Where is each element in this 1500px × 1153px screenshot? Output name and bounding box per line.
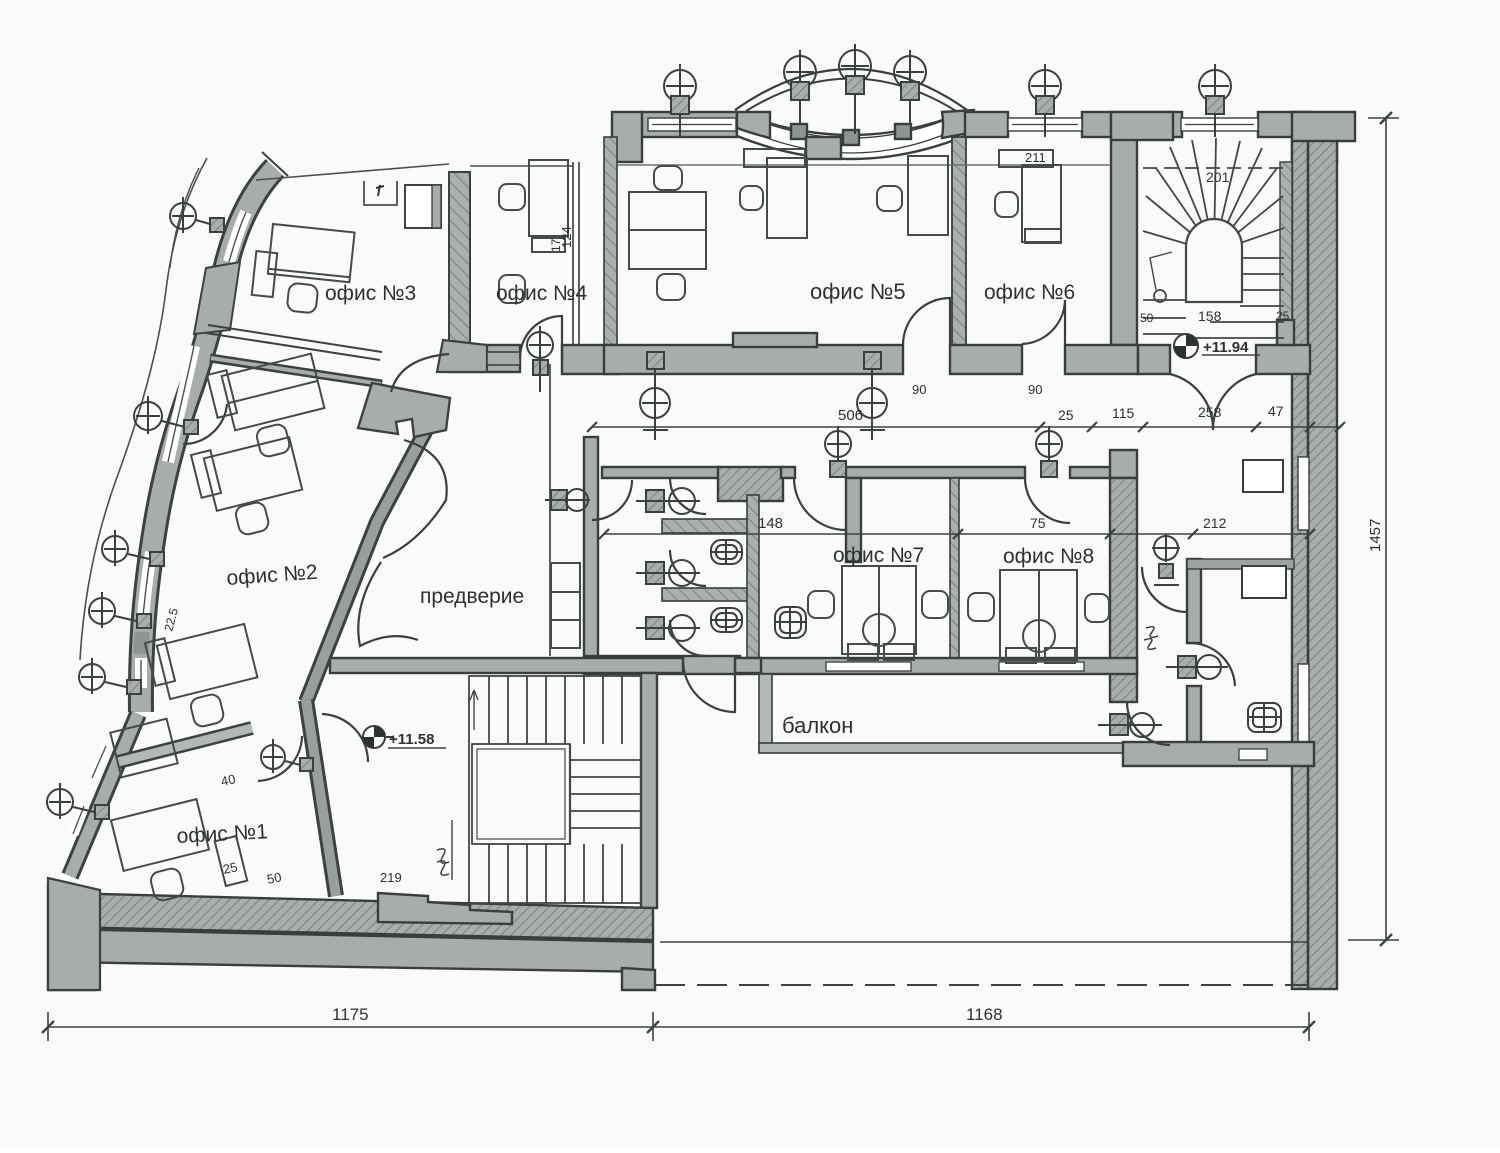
svg-text:+11.58: +11.58 [389, 731, 434, 748]
svg-text:1168: 1168 [966, 1005, 1003, 1024]
svg-text:75: 75 [1030, 515, 1046, 531]
svg-text:506: 506 [838, 407, 863, 424]
svg-text:+11.94: +11.94 [1203, 339, 1249, 356]
svg-text:1457: 1457 [1367, 519, 1384, 552]
svg-text:90: 90 [912, 382, 926, 397]
svg-text:офис №1: офис №1 [176, 820, 268, 848]
svg-text:офис №7: офис №7 [833, 544, 924, 567]
svg-text:офис №3: офис №3 [325, 282, 416, 305]
svg-text:25: 25 [1058, 407, 1074, 423]
svg-text:50: 50 [266, 869, 283, 887]
svg-text:17: 17 [549, 238, 563, 252]
svg-text:258: 258 [1198, 404, 1222, 420]
svg-text:90: 90 [1028, 382, 1042, 397]
svg-text:115: 115 [1112, 405, 1135, 421]
svg-text:1175: 1175 [332, 1005, 369, 1024]
svg-text:офис №6: офис №6 [984, 281, 1075, 304]
svg-text:148: 148 [758, 515, 783, 532]
svg-text:212: 212 [1203, 515, 1227, 531]
svg-text:158: 158 [1198, 308, 1222, 324]
svg-text:25: 25 [222, 859, 239, 877]
svg-text:201: 201 [1206, 169, 1230, 185]
svg-text:офис №4: офис №4 [496, 282, 588, 305]
svg-text:40: 40 [220, 771, 237, 789]
svg-text:50: 50 [1140, 311, 1154, 325]
svg-text:балкон: балкон [782, 713, 853, 738]
svg-text:25: 25 [1276, 309, 1290, 323]
svg-text:офис №8: офис №8 [1003, 545, 1094, 568]
svg-text:219: 219 [380, 870, 402, 885]
svg-text:47: 47 [1268, 403, 1284, 419]
svg-text:211: 211 [1025, 150, 1046, 165]
svg-text:предверие: предверие [420, 585, 524, 608]
svg-text:офис №5: офис №5 [810, 279, 906, 304]
